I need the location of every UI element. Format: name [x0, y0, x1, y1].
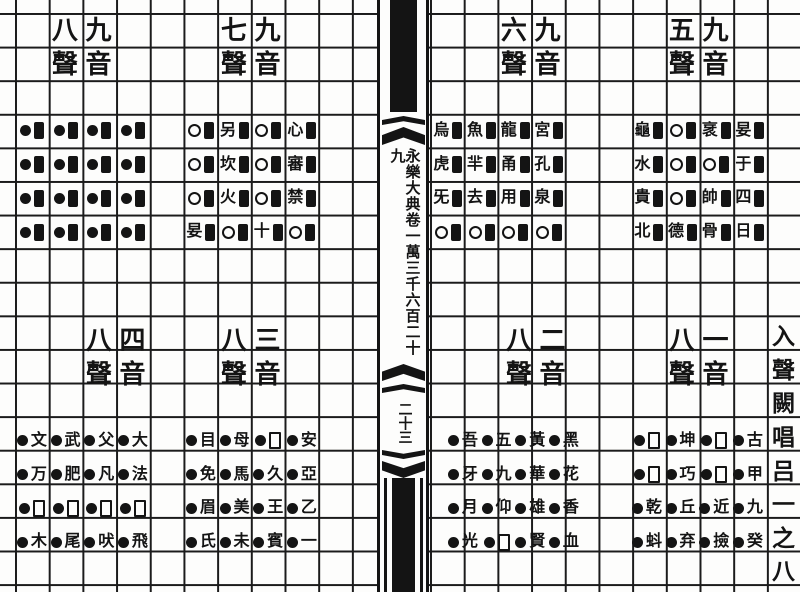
bar-symbol [135, 190, 145, 207]
ring-symbol [255, 192, 268, 205]
group-header-upper-left: 八九聲音 [48, 14, 115, 82]
dot-symbol [51, 435, 62, 446]
table-cell [15, 148, 49, 182]
character-glyph: 王 [267, 500, 283, 516]
table-cell: 近 [697, 492, 731, 526]
character-glyph: 坤 [680, 433, 696, 449]
ring-symbol [670, 158, 683, 171]
bar-symbol [553, 122, 563, 139]
dot-symbol [20, 125, 31, 136]
table-cell: 万 [15, 458, 49, 492]
bar-symbol [686, 190, 696, 207]
table-cell [699, 148, 733, 182]
character-glyph: 旡 [433, 190, 449, 206]
dot-symbol [86, 503, 97, 514]
dot-symbol [666, 469, 677, 480]
table-cell: 尾 [49, 525, 83, 559]
table-cell: 水 [632, 148, 666, 182]
dot-symbol [549, 469, 560, 480]
bar-symbol [306, 190, 316, 207]
character-glyph: 美 [234, 500, 250, 516]
dot-symbol [17, 537, 28, 548]
dot-symbol [51, 537, 62, 548]
table-cell: 旡 [431, 182, 465, 216]
bar-symbol [754, 190, 764, 207]
table-cell [251, 182, 285, 216]
table-cell [218, 215, 252, 249]
character-glyph: 甬 [501, 157, 517, 173]
table-cell: 龍 [498, 114, 532, 148]
table-cell: 牙 [446, 458, 480, 492]
table-cell: 武 [49, 424, 83, 458]
spine-bottom-bar [392, 478, 415, 592]
table-cell [697, 424, 731, 458]
dot-symbol [87, 125, 98, 136]
bar-symbol [135, 224, 145, 241]
right-margin-label: 入聲闕唱吕一之八 [767, 320, 800, 589]
dot-symbol [20, 227, 31, 238]
table-cell: 羋 [465, 148, 499, 182]
table-cell [465, 215, 499, 249]
table-cell: 亞 [285, 458, 319, 492]
table-cell: 日 [733, 215, 767, 249]
margin-glyph: 唱 [767, 421, 800, 455]
table-cell: 血 [547, 525, 581, 559]
spine-bottom-rule [384, 478, 387, 592]
dot-symbol [699, 537, 710, 548]
bar-symbol [452, 156, 462, 173]
table-cell: 凡 [82, 458, 116, 492]
character-glyph: 五 [496, 433, 512, 449]
bar-symbol [101, 122, 111, 139]
table-cell [666, 148, 700, 182]
bar-symbol [721, 224, 731, 241]
table-cell: 用 [498, 182, 532, 216]
table-cell: 帥 [699, 182, 733, 216]
group-header-lower-right: 八一聲音 [665, 324, 732, 392]
dot-symbol [87, 193, 98, 204]
table-cell: 肥 [49, 458, 83, 492]
bar-symbol [204, 190, 214, 207]
table-cell: 火 [218, 182, 252, 216]
table-cell [116, 182, 150, 216]
bar-symbol [101, 156, 111, 173]
bar-symbol [721, 190, 731, 207]
bar-symbol [754, 224, 764, 241]
character-glyph: 一 [301, 534, 317, 550]
character-glyph: 武 [65, 433, 81, 449]
table-cell: 花 [547, 458, 581, 492]
table-cell [82, 215, 116, 249]
bar-symbol [135, 156, 145, 173]
header-glyph: 八 [82, 324, 116, 358]
character-glyph: 父 [98, 433, 114, 449]
dot-symbol [632, 537, 643, 548]
dot-symbol [118, 435, 129, 446]
table-cell: 賢 [513, 525, 547, 559]
table-cell: 法 [116, 458, 150, 492]
character-glyph: 九 [747, 500, 763, 516]
character-glyph: 烏 [433, 123, 449, 139]
table-cell: 北 [632, 215, 666, 249]
dot-symbol [253, 503, 264, 514]
dot-symbol [482, 469, 493, 480]
character-glyph: 久 [267, 467, 283, 483]
table-cell: 王 [251, 492, 285, 526]
dot-symbol [118, 469, 129, 480]
box-symbol [498, 534, 510, 551]
table-cell [116, 492, 150, 526]
bar-symbol [306, 122, 316, 139]
header-glyph: 八 [48, 14, 82, 48]
table-cell: 雄 [513, 492, 547, 526]
character-glyph: 羋 [467, 157, 483, 173]
table-cell: 月 [446, 492, 480, 526]
character-glyph: 丘 [680, 500, 696, 516]
header-glyph: 音 [699, 48, 733, 82]
character-glyph: 牙 [462, 467, 478, 483]
bar-symbol [306, 156, 316, 173]
character-glyph: 九 [496, 467, 512, 483]
table-cell [480, 525, 514, 559]
bar-symbol [653, 224, 663, 241]
bar-symbol [68, 156, 78, 173]
ring-symbol [188, 192, 201, 205]
table-cell: 蚪 [630, 525, 664, 559]
table-cell: 貴 [632, 182, 666, 216]
character-glyph: 乙 [301, 500, 317, 516]
table-cell: 安 [285, 424, 319, 458]
table-cell [697, 458, 731, 492]
header-glyph: 四 [116, 324, 150, 358]
dot-symbol [634, 469, 645, 480]
character-glyph: 氏 [200, 534, 216, 550]
dot-symbol [54, 227, 65, 238]
table-cell: 五 [480, 424, 514, 458]
group-header-upper-mid-left: 七九聲音 [217, 14, 284, 82]
bar-symbol [204, 122, 214, 139]
table-cell: 烏 [431, 114, 465, 148]
table-cell: 九 [731, 492, 765, 526]
bar-symbol [653, 190, 663, 207]
table-cell [82, 182, 116, 216]
dot-symbol [20, 159, 31, 170]
dot-symbol [549, 503, 560, 514]
dot-symbol [287, 469, 298, 480]
box-symbol [67, 500, 79, 517]
dot-symbol [186, 537, 197, 548]
table-cell: 四 [733, 182, 767, 216]
character-glyph: 弃 [680, 534, 696, 550]
table-cell [15, 182, 49, 216]
box-symbol [269, 432, 281, 449]
ring-symbol [435, 226, 448, 239]
character-glyph: 魚 [467, 123, 483, 139]
dot-symbol [186, 469, 197, 480]
dot-symbol [87, 227, 98, 238]
dot-symbol [20, 193, 31, 204]
header-glyph: 六 [497, 14, 531, 48]
header-glyph: 音 [116, 358, 150, 392]
character-glyph: 癸 [747, 534, 763, 550]
table-cell [49, 148, 83, 182]
bar-symbol [452, 190, 462, 207]
group-header-lower-mid-right: 八二聲音 [502, 324, 569, 392]
bar-symbol [239, 122, 249, 139]
dot-symbol [253, 469, 264, 480]
dot-symbol [220, 435, 231, 446]
bar-symbol [653, 156, 663, 173]
box-symbol [715, 466, 727, 483]
table-cell: 骨 [699, 215, 733, 249]
character-glyph: 妟 [735, 123, 751, 139]
bar-symbol [271, 190, 281, 207]
table-cell [49, 182, 83, 216]
bar-symbol [518, 224, 528, 241]
bar-symbol [486, 156, 496, 173]
table-cell [116, 215, 150, 249]
bar-symbol [239, 156, 249, 173]
table-cell [251, 424, 285, 458]
dot-symbol [17, 469, 28, 480]
dot-symbol [482, 503, 493, 514]
character-glyph: 凡 [98, 467, 114, 483]
character-glyph: 近 [713, 500, 729, 516]
bar-symbol [34, 122, 44, 139]
bar-symbol [305, 224, 315, 241]
bar-symbol [34, 156, 44, 173]
character-glyph: 母 [234, 433, 250, 449]
margin-glyph: 吕 [767, 454, 800, 488]
character-glyph: 亞 [301, 467, 317, 483]
table-cell: 另 [218, 114, 252, 148]
character-glyph: 妟 [186, 224, 202, 240]
dot-symbol [121, 159, 132, 170]
bar-symbol [754, 156, 764, 173]
dot-symbol [253, 537, 264, 548]
header-glyph: 聲 [497, 48, 531, 82]
box-symbol [33, 500, 45, 517]
header-glyph: 音 [699, 358, 733, 392]
dot-symbol [287, 435, 298, 446]
table-cell [630, 458, 664, 492]
character-glyph: 黃 [529, 433, 545, 449]
ring-symbol [502, 226, 515, 239]
bar-symbol [520, 156, 530, 173]
character-glyph: 馬 [234, 467, 250, 483]
table-cell: 母 [218, 424, 252, 458]
dot-symbol [448, 503, 459, 514]
table-cell: 氏 [184, 525, 218, 559]
margin-glyph: 之 [767, 522, 800, 556]
table-cell [532, 215, 566, 249]
table-cell [82, 492, 116, 526]
ring-symbol [255, 124, 268, 137]
header-glyph: 八 [665, 324, 699, 358]
table-cell [251, 148, 285, 182]
character-glyph: 龜 [634, 123, 650, 139]
table-cell [82, 148, 116, 182]
bar-symbol [520, 122, 530, 139]
table-cell: 大 [116, 424, 150, 458]
bar-symbol [68, 224, 78, 241]
dot-symbol [287, 537, 298, 548]
character-glyph: 十 [254, 224, 270, 240]
spine-top-bar [390, 0, 417, 112]
table-cell [184, 148, 218, 182]
table-cell: 魚 [465, 114, 499, 148]
table-cell: 馬 [218, 458, 252, 492]
header-glyph: 九 [699, 14, 733, 48]
group-cells-upper-left [15, 114, 150, 249]
table-cell: 目 [184, 424, 218, 458]
table-cell: 吠 [82, 525, 116, 559]
bar-symbol [653, 122, 663, 139]
ring-symbol [536, 226, 549, 239]
table-cell: 免 [184, 458, 218, 492]
ring-symbol [188, 158, 201, 171]
group-cells-upper-right: 龜衺妟水于貴帥四北德骨日 [632, 114, 767, 249]
group-header-upper-mid-right: 六九聲音 [497, 14, 564, 82]
character-glyph: 法 [132, 467, 148, 483]
character-glyph: 尾 [65, 534, 81, 550]
table-cell: 古 [731, 424, 765, 458]
margin-glyph: 闕 [767, 387, 800, 421]
box-symbol [715, 432, 727, 449]
table-cell: 未 [218, 525, 252, 559]
table-cell: 撿 [697, 525, 731, 559]
bar-symbol [273, 224, 283, 241]
character-glyph: 撿 [713, 534, 729, 550]
group-cells-lower-mid-right: 吾五黃黑牙九華花月仰雄香光賢血 [446, 424, 581, 559]
character-glyph: 帥 [702, 190, 718, 206]
header-glyph: 聲 [665, 358, 699, 392]
character-glyph: 雄 [529, 500, 545, 516]
header-glyph: 三 [251, 324, 285, 358]
character-glyph: 巧 [680, 467, 696, 483]
table-cell: 九 [480, 458, 514, 492]
bar-symbol [486, 190, 496, 207]
dot-symbol [666, 435, 677, 446]
ring-symbol [188, 124, 201, 137]
header-glyph: 二 [536, 324, 570, 358]
ring-symbol [670, 192, 683, 205]
character-glyph: 水 [634, 157, 650, 173]
dot-symbol [287, 503, 298, 514]
character-glyph: 光 [462, 534, 478, 550]
dot-symbol [733, 469, 744, 480]
character-glyph: 德 [668, 224, 684, 240]
group-cells-upper-mid-right: 烏魚龍宮虎羋甬孔旡去用泉 [431, 114, 566, 249]
header-glyph: 八 [502, 324, 536, 358]
box-symbol [648, 466, 660, 483]
character-glyph: 仰 [496, 500, 512, 516]
bar-symbol [135, 122, 145, 139]
bar-symbol [68, 190, 78, 207]
table-cell: 妟 [184, 215, 218, 249]
dot-symbol [255, 435, 266, 446]
bar-symbol [451, 224, 461, 241]
character-glyph: 骨 [702, 224, 718, 240]
bar-symbol [552, 224, 562, 241]
character-glyph: 蚪 [646, 534, 662, 550]
dot-symbol [87, 159, 98, 170]
character-glyph: 吾 [462, 433, 478, 449]
table-cell [49, 114, 83, 148]
bar-symbol [205, 224, 215, 241]
table-cell [184, 114, 218, 148]
table-cell: 孔 [532, 148, 566, 182]
character-glyph: 坎 [220, 157, 236, 173]
table-cell: 甬 [498, 148, 532, 182]
table-cell: 吾 [446, 424, 480, 458]
table-cell: 坎 [218, 148, 252, 182]
dot-symbol [54, 125, 65, 136]
character-glyph: 甲 [747, 467, 763, 483]
character-glyph: 香 [563, 500, 579, 516]
ring-symbol [222, 226, 235, 239]
header-glyph: 聲 [217, 358, 251, 392]
margin-glyph: 一 [767, 488, 800, 522]
group-header-upper-right: 五九聲音 [665, 14, 732, 82]
table-cell: 宮 [532, 114, 566, 148]
dot-symbol [220, 537, 231, 548]
group-header-lower-mid-left: 八三聲音 [217, 324, 284, 392]
table-cell: 虎 [431, 148, 465, 182]
character-glyph: 飛 [132, 534, 148, 550]
group-header-lower-left: 八四聲音 [82, 324, 149, 392]
character-glyph: 火 [220, 190, 236, 206]
bar-symbol [34, 190, 44, 207]
table-cell: 去 [465, 182, 499, 216]
dot-symbol [632, 503, 643, 514]
spine-page-number: 二十三 [379, 398, 428, 448]
table-cell: 黑 [547, 424, 581, 458]
table-cell: 坤 [664, 424, 698, 458]
table-cell: 文 [15, 424, 49, 458]
table-cell: 黃 [513, 424, 547, 458]
ring-symbol [469, 226, 482, 239]
dot-symbol [701, 435, 712, 446]
character-glyph: 孔 [534, 157, 550, 173]
table-cell [15, 492, 49, 526]
dot-symbol [53, 503, 64, 514]
header-glyph: 七 [217, 14, 251, 48]
margin-glyph: 入 [767, 320, 800, 354]
dot-symbol [84, 469, 95, 480]
table-cell: 妟 [733, 114, 767, 148]
character-glyph: 肥 [65, 467, 81, 483]
header-glyph: 聲 [217, 48, 251, 82]
table-cell [285, 215, 319, 249]
character-glyph: 龍 [501, 123, 517, 139]
character-glyph: 万 [31, 467, 47, 483]
character-glyph: 月 [462, 500, 478, 516]
character-glyph: 吠 [98, 534, 114, 550]
bar-symbol [520, 190, 530, 207]
character-glyph: 另 [220, 123, 236, 139]
dot-symbol [549, 435, 560, 446]
character-glyph: 古 [747, 433, 763, 449]
scanned-page: 永樂大典卷一萬三千六百二十九 二十三 八九聲音 七九聲音 六九聲音 五九聲音 八… [0, 0, 800, 592]
character-glyph: 北 [634, 224, 650, 240]
character-glyph: 宮 [534, 123, 550, 139]
dot-symbol [17, 435, 28, 446]
dot-symbol [482, 435, 493, 446]
table-cell [184, 182, 218, 216]
character-glyph: 乾 [646, 500, 662, 516]
bar-symbol [204, 156, 214, 173]
